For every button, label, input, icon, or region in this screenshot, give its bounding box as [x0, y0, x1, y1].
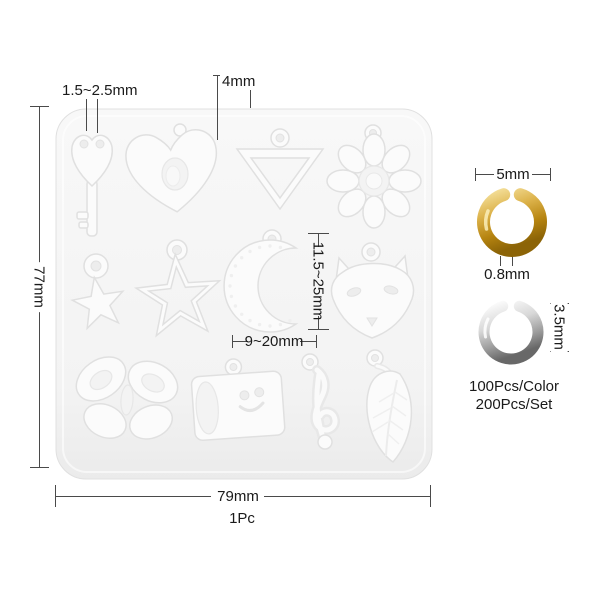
dim-key-holes-leaders [82, 97, 102, 134]
pcs-per-color-label: 100Pcs/Color [467, 378, 561, 395]
dim-mold-width-label: 79mm [215, 488, 261, 505]
product-image: 1.5~2.5mm 4mm 77mm 11.5~25mm 9~20mm 79mm… [0, 0, 600, 600]
dim-silver-diameter-label: 3.5mm [550, 300, 567, 354]
dim-gold-diameter-label: 5mm [494, 166, 531, 183]
dim-charm-width-label: 9~20mm [245, 333, 304, 350]
pcs-per-set-label: 200Pcs/Set [474, 396, 555, 413]
dim-key-holes-label: 1.5~2.5mm [60, 82, 139, 99]
dim-heart-hole-label: 4mm [220, 73, 257, 90]
dim-charm-height-label: 11.5~25mm [309, 242, 326, 321]
gold-jump-ring [471, 181, 553, 263]
dim-mold-height-label: 77mm [30, 262, 47, 312]
dim-gold-wire-label: 0.8mm [482, 266, 532, 283]
silver-jump-ring [470, 297, 552, 369]
mold-quantity-label: 1Pc [227, 510, 257, 527]
